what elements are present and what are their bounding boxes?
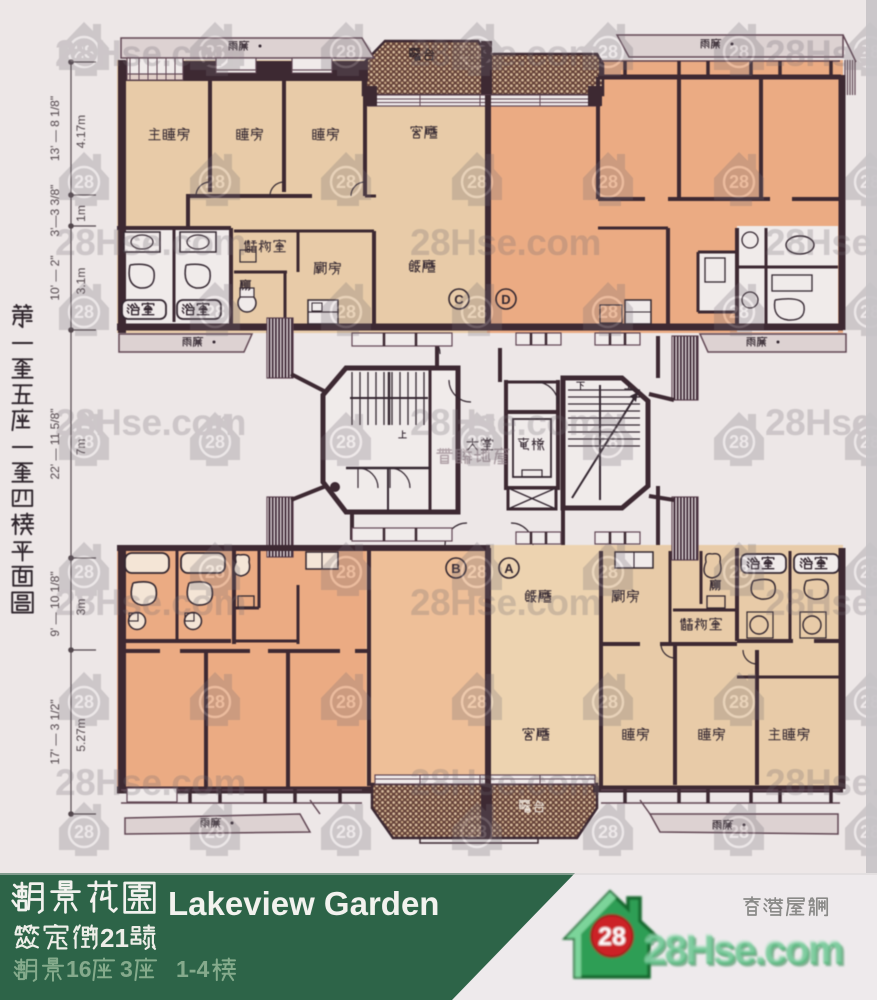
svg-text:28: 28	[598, 923, 626, 951]
svg-text:21: 21	[100, 923, 129, 953]
svg-text:16: 16	[66, 956, 92, 982]
svg-text:28Hse.com: 28Hse.com	[643, 925, 842, 971]
svg-text:1-4: 1-4	[176, 956, 209, 982]
svg-text:Lakeview Garden: Lakeview Garden	[168, 885, 439, 922]
svg-text:3: 3	[120, 956, 133, 982]
